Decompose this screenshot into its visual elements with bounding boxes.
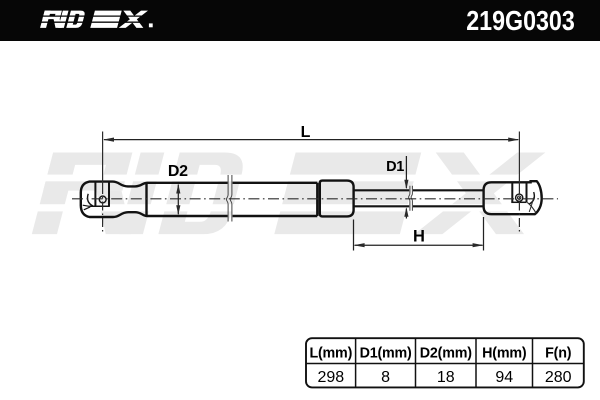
- svg-text:94: 94: [495, 369, 513, 386]
- svg-text:298: 298: [317, 369, 344, 386]
- svg-text:H(mm): H(mm): [482, 346, 527, 362]
- svg-text:18: 18: [437, 369, 455, 386]
- svg-text:L(mm): L(mm): [309, 346, 352, 362]
- svg-text:L: L: [301, 124, 311, 141]
- svg-text:H: H: [413, 228, 425, 246]
- svg-text:F(n): F(n): [545, 346, 572, 362]
- svg-text:D2: D2: [168, 163, 188, 180]
- svg-text:8: 8: [381, 369, 390, 386]
- svg-text:D1(mm): D1(mm): [360, 346, 412, 362]
- svg-text:D1: D1: [386, 159, 404, 175]
- svg-text:280: 280: [545, 369, 572, 386]
- svg-text:D2(mm): D2(mm): [420, 346, 472, 362]
